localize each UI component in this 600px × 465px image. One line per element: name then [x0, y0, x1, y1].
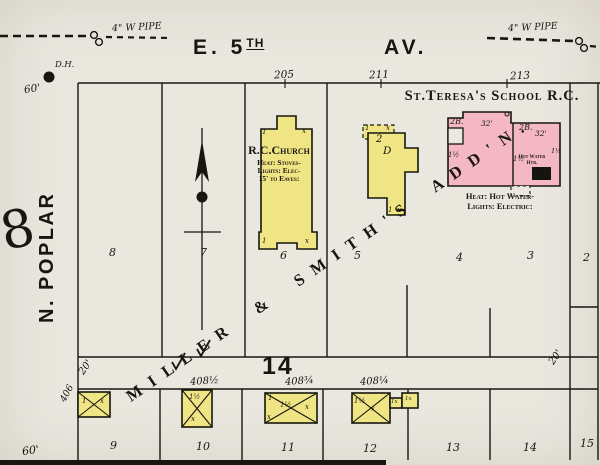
school-note-lights: Lights: Electric:	[438, 201, 562, 211]
water-pipe-line	[590, 46, 600, 47]
heater-icon	[532, 167, 551, 180]
school-annex	[448, 128, 463, 144]
annex-mark: 1x	[405, 396, 412, 402]
lot-number: 12	[363, 442, 377, 455]
roof-mark: x	[302, 127, 306, 135]
north-arrow-dot	[197, 192, 208, 203]
valve-icon	[576, 38, 583, 45]
story-mark: 1	[262, 237, 266, 245]
annex-mark: 1x	[391, 399, 398, 405]
street-name-av: AV.	[384, 36, 428, 60]
scan-edge-bar	[0, 460, 386, 465]
lot-number: 2	[583, 251, 590, 264]
story-mark: 1	[268, 394, 272, 402]
hydrant-distance: 60'	[23, 82, 41, 96]
street-name-n-poplar: N. POPLAR	[36, 192, 59, 323]
water-pipe-line	[487, 38, 574, 41]
address-211: 211	[369, 68, 390, 81]
hydrant-label: D.H.	[55, 60, 74, 70]
valve-icon	[581, 45, 588, 52]
stories-mark: 1½	[551, 147, 561, 155]
story-mark: 1	[365, 124, 369, 132]
lot-number: 13	[446, 441, 460, 454]
school-right-stories: 2B.	[519, 123, 533, 132]
hydrant-icon	[44, 72, 55, 83]
lot-number: 15	[580, 437, 594, 450]
address-408-threequarter: 408¾	[285, 375, 314, 388]
school-note-heat: Heat: Hot Water-	[438, 191, 562, 201]
roof-mark: x	[305, 237, 309, 245]
roof-mark: x	[267, 413, 271, 421]
valve-icon	[96, 39, 103, 46]
school-left-stories: 2B.	[450, 117, 464, 126]
address-408-quarter: 408¼	[360, 375, 389, 388]
roof-mark: x	[397, 206, 401, 214]
sanborn-map-sheet: E. 5TH AV. N. POPLAR 4" W PIPE 4" W PIPE…	[0, 0, 600, 465]
stories-mark: 1½	[189, 393, 200, 401]
roof-mark: x	[100, 397, 104, 405]
roof-mark: x	[305, 403, 309, 411]
school-left-width: 32'	[481, 119, 493, 128]
school-right-width: 32'	[535, 129, 547, 138]
lot-number: 9	[110, 439, 117, 452]
lot-number: 14	[523, 441, 537, 454]
lot-number: 11	[281, 441, 295, 454]
lot-number: 6	[280, 249, 287, 262]
school-title: St.Teresa's School R.C.	[384, 88, 600, 105]
lot-number: 7	[200, 246, 207, 259]
water-pipe-line	[106, 37, 172, 38]
lot-number: 3	[527, 249, 534, 262]
lot-number: 4	[456, 251, 463, 264]
lot-number: 5	[354, 249, 361, 262]
story-mark: 1	[262, 128, 266, 136]
story-mark: 1	[388, 206, 392, 214]
stories-mark: 1½	[280, 401, 291, 409]
lot-number: 8	[109, 246, 116, 259]
dwelling-stories: 2	[376, 134, 382, 145]
roof-mark: x	[371, 405, 375, 413]
story-mark: 1	[82, 397, 86, 405]
street-e5th-sup: TH	[246, 36, 264, 50]
address-205: 205	[274, 68, 295, 81]
church-note-eaves: 15' to Eaves:	[238, 174, 320, 183]
roof-mark: x	[386, 124, 390, 132]
lot-number: 10	[196, 440, 210, 453]
street-e5th-text: E. 5	[193, 36, 246, 59]
heater-label: Hot Water Htr.	[515, 155, 549, 167]
street-name-e5th: E. 5TH	[193, 36, 264, 60]
stories-mark: 1½	[448, 151, 459, 159]
address-213: 213	[510, 69, 531, 82]
roof-mark: x	[191, 415, 195, 423]
valve-icon	[91, 32, 98, 39]
street-width-sw: 60'	[21, 443, 40, 458]
church-name: R.C.Church	[240, 143, 318, 158]
address-408-half: 408½	[190, 375, 219, 388]
dwelling-type: D	[383, 145, 391, 157]
stories-mark: 1½	[354, 397, 365, 405]
